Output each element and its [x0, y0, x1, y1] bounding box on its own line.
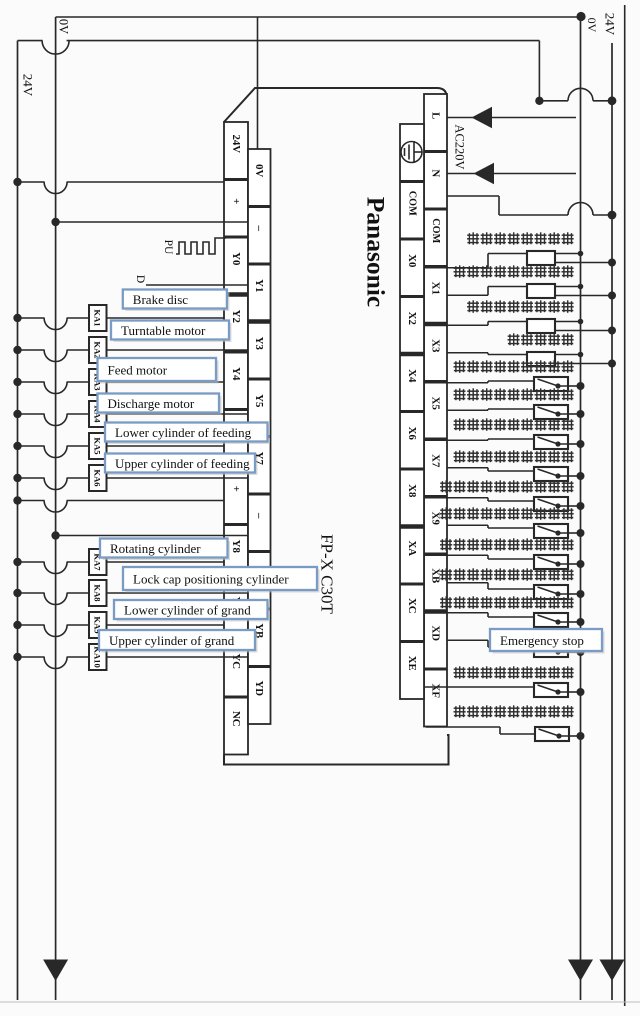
svg-text:X8: X8	[406, 484, 418, 498]
svg-text:L: L	[430, 112, 442, 119]
svg-text:KA2: KA2	[93, 341, 103, 358]
svg-text:KA6: KA6	[93, 469, 103, 487]
svg-text:24V: 24V	[230, 134, 242, 153]
svg-text:Turntable motor: Turntable motor	[121, 323, 206, 338]
svg-text:AC220V: AC220V	[453, 124, 467, 169]
svg-text:Upper cylinder of grand: Upper cylinder of grand	[109, 633, 235, 648]
svg-text:FP-X C30T: FP-X C30T	[318, 534, 337, 614]
svg-text:COM: COM	[407, 191, 418, 216]
svg-text:KA8: KA8	[93, 584, 103, 602]
svg-text:0V: 0V	[57, 19, 71, 34]
svg-text:X7: X7	[430, 454, 442, 468]
svg-text:–: –	[253, 225, 265, 232]
svg-text:X9: X9	[430, 512, 442, 526]
svg-text:X4: X4	[406, 369, 418, 383]
svg-text:Y5: Y5	[253, 394, 265, 407]
svg-text:Brake disc: Brake disc	[133, 292, 188, 307]
svg-text:24V: 24V	[603, 13, 618, 36]
svg-text:X0: X0	[406, 254, 418, 267]
svg-text:YD: YD	[253, 680, 265, 696]
svg-text:X6: X6	[406, 427, 418, 441]
svg-text:Lower cylinder of grand: Lower cylinder of grand	[124, 603, 251, 618]
svg-text:Discharge motor: Discharge motor	[108, 396, 195, 411]
svg-text:XF: XF	[430, 684, 442, 699]
svg-text:KA1: KA1	[93, 309, 103, 326]
svg-text:Y2: Y2	[230, 310, 242, 323]
svg-text:XB: XB	[430, 568, 442, 583]
svg-text:Lower cylinder of feeding: Lower cylinder of feeding	[115, 425, 252, 440]
svg-text:+: +	[230, 486, 242, 492]
svg-text:Upper cylinder of feeding: Upper cylinder of feeding	[115, 456, 250, 471]
svg-text:COM: COM	[430, 218, 441, 243]
svg-text:Y4: Y4	[230, 367, 242, 381]
svg-text:Y0: Y0	[230, 252, 242, 265]
svg-text:Y8: Y8	[230, 540, 242, 554]
svg-text:KA5: KA5	[93, 437, 103, 454]
svg-text:N: N	[430, 169, 442, 177]
svg-text:0V: 0V	[253, 164, 265, 177]
svg-text:24V: 24V	[21, 74, 36, 97]
svg-text:Feed motor: Feed motor	[108, 363, 168, 378]
svg-text:YC: YC	[230, 653, 242, 669]
svg-text:X3: X3	[430, 339, 442, 353]
svg-text:Lock cap positioning cylinder: Lock cap positioning cylinder	[133, 572, 289, 587]
svg-text:0V: 0V	[585, 18, 599, 33]
svg-text:X5: X5	[430, 397, 442, 410]
svg-text:XC: XC	[406, 598, 418, 614]
svg-text:Y1: Y1	[253, 279, 265, 292]
svg-text:Emergency stop: Emergency stop	[500, 633, 584, 648]
svg-text:Rotating cylinder: Rotating cylinder	[110, 541, 201, 556]
svg-text:–: –	[253, 512, 265, 519]
svg-text:XD: XD	[430, 625, 442, 641]
svg-text:+: +	[230, 198, 242, 204]
svg-text:XE: XE	[406, 656, 418, 671]
svg-text:D: D	[134, 275, 146, 283]
svg-text:PU: PU	[162, 240, 174, 255]
svg-text:XA: XA	[406, 540, 418, 556]
svg-text:Panasonic: Panasonic	[362, 197, 391, 308]
svg-text:X2: X2	[406, 312, 418, 325]
svg-text:NC: NC	[230, 711, 242, 727]
svg-text:Y3: Y3	[253, 337, 265, 351]
svg-text:X1: X1	[430, 282, 442, 295]
